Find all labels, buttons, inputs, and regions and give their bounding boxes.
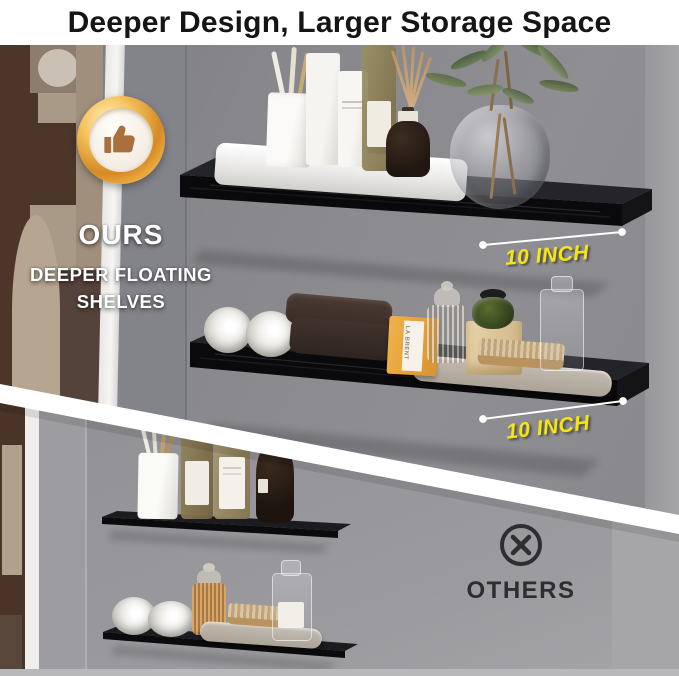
- banner: Deeper Design, Larger Storage Space: [0, 0, 679, 45]
- photo-area: LA BRENT: [0, 45, 679, 676]
- glass-bottle: [540, 289, 584, 371]
- ours-subtitle-line1: DEEPER FLOATING: [1, 266, 241, 285]
- cosmetic-box: [306, 53, 340, 165]
- thumbs-up-icon: [101, 120, 141, 160]
- rolled-towel: [204, 307, 252, 353]
- ours-text-block: OURS DEEPER FLOATING SHELVES: [1, 221, 241, 311]
- page-title: Deeper Design, Larger Storage Space: [68, 6, 612, 40]
- x-circle-icon: [497, 521, 545, 569]
- rolled-towel: [148, 601, 194, 637]
- ours-label: OURS: [1, 221, 241, 249]
- others-label: OTHERS: [431, 577, 611, 605]
- amber-bottle: [181, 433, 213, 519]
- plant-foliage: [415, 45, 585, 121]
- product-marketing-image: Deeper Design, Larger Storage Space: [0, 0, 679, 676]
- apothecary-jar: [427, 285, 467, 363]
- green-glass-jar: [472, 289, 514, 329]
- approval-badge: [77, 96, 165, 184]
- soap-box-label: LA BRENT: [402, 326, 410, 360]
- toothbrush-cup: [137, 453, 178, 520]
- glass-bottle: [272, 573, 312, 641]
- ours-subtitle-line2: SHELVES: [1, 293, 241, 312]
- floor-edge: [0, 669, 679, 676]
